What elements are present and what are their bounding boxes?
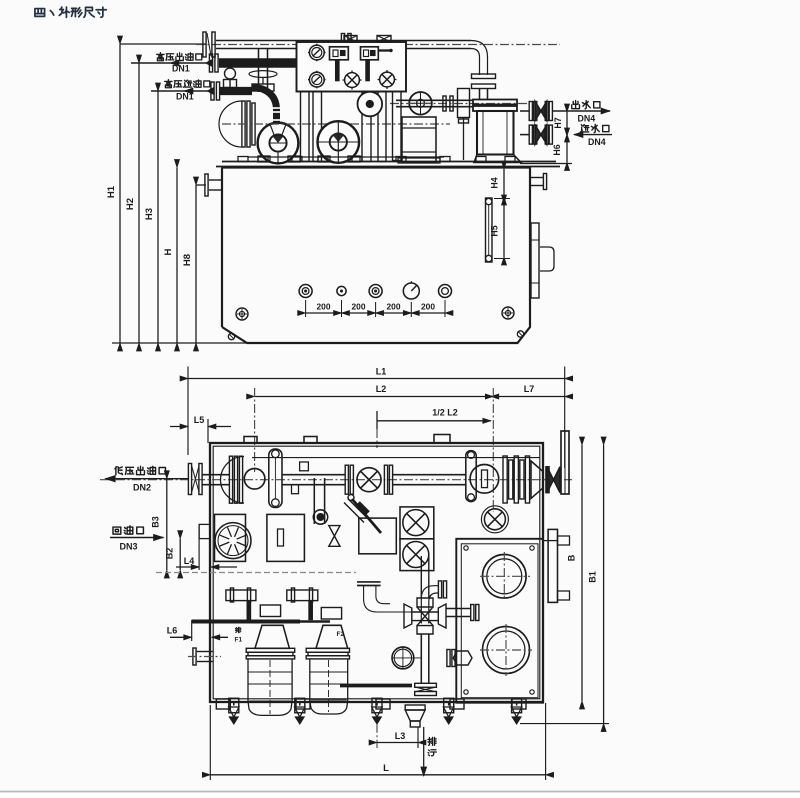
svg-text:L2: L2 [376,384,387,394]
svg-text:B3: B3 [151,516,161,528]
svg-text:L3: L3 [395,731,406,741]
svg-text:H2: H2 [125,198,136,210]
svg-text:L1: L1 [376,367,387,377]
svg-text:L6: L6 [167,626,178,636]
svg-text:DN4: DN4 [588,137,606,147]
svg-text:F1: F1 [235,637,243,644]
svg-text:F2: F2 [337,631,345,638]
svg-text:DN1: DN1 [172,64,190,74]
svg-text:DN4: DN4 [578,114,596,124]
svg-text:200: 200 [317,302,331,312]
svg-text:H5: H5 [490,225,500,236]
svg-text:L5: L5 [194,415,205,425]
svg-text:B2: B2 [165,548,175,560]
svg-text:L7: L7 [524,384,535,394]
svg-text:L4: L4 [184,556,195,566]
svg-text:DN2: DN2 [133,483,151,493]
svg-text:DN3: DN3 [120,542,138,552]
svg-text:H4: H4 [490,177,500,188]
svg-text:1/2 L2: 1/2 L2 [432,408,458,418]
svg-text:200: 200 [352,302,366,312]
svg-text:B1: B1 [588,571,598,583]
svg-text:L: L [383,763,389,774]
svg-text:H3: H3 [144,208,155,220]
svg-text:200: 200 [421,302,435,312]
svg-text:H7: H7 [553,117,563,128]
svg-text:B: B [567,554,577,561]
svg-text:H1: H1 [106,185,117,198]
svg-text:H: H [163,248,174,255]
svg-text:H6: H6 [552,144,562,155]
svg-text:200: 200 [387,302,401,312]
svg-text:H8: H8 [182,254,193,266]
